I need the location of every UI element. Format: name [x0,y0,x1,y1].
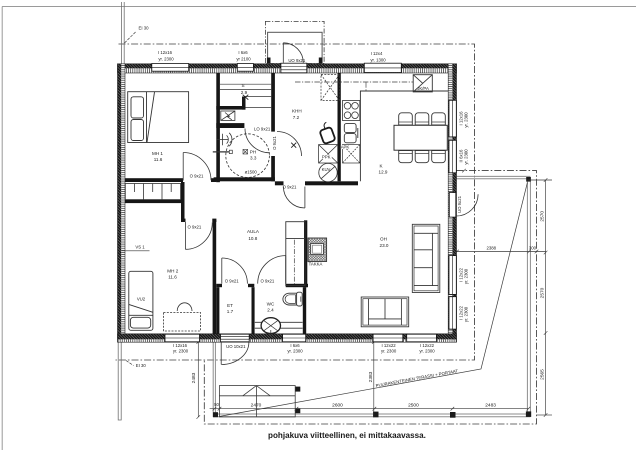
svg-text:OH: OH [380,236,387,241]
svg-text:yr. 1300: yr. 1300 [370,57,386,62]
svg-text:I 12x22: I 12x22 [382,343,397,348]
svg-text:S: S [241,83,244,88]
svg-text:I 12x16: I 12x16 [158,50,173,55]
svg-text:O 9x21: O 9x21 [187,224,201,229]
svg-text:2388: 2388 [487,246,497,251]
svg-text:2570: 2570 [539,287,545,298]
svg-text:KUV: KUV [322,167,331,172]
svg-text:7.2: 7.2 [293,115,300,120]
svg-text:2565: 2565 [539,369,545,380]
svg-text:pohjakuva viitteellinen, ei mi: pohjakuva viitteellinen, ei mittakaavass… [268,431,426,440]
svg-text:12.9: 12.9 [379,170,388,175]
svg-text:10.8: 10.8 [248,236,257,241]
svg-text:I 6x6: I 6x6 [238,50,248,55]
svg-text:JK/PA: JK/PA [417,86,429,91]
svg-text:2570: 2570 [539,211,545,222]
svg-text:UO 9x21: UO 9x21 [288,58,306,63]
svg-text:KHH: KHH [292,108,302,113]
svg-text:2.9: 2.9 [241,90,248,95]
svg-text:TAKKA: TAKKA [309,262,323,267]
svg-text:yr. 2300: yr. 2300 [287,348,303,353]
svg-text:APK: APK [341,145,350,150]
svg-text:O 9x21: O 9x21 [283,184,297,189]
svg-text:11.6: 11.6 [168,275,177,280]
svg-text:23.0: 23.0 [380,243,389,248]
svg-text:VS 1: VS 1 [135,245,145,250]
svg-text:LO 9x21: LO 9x21 [254,127,271,132]
svg-text:I 12x22: I 12x22 [420,343,435,348]
svg-text:PPK: PPK [322,155,331,160]
svg-text:MH 1: MH 1 [152,151,163,156]
svg-text:MH 2: MH 2 [167,269,178,274]
svg-text:O 9x21: O 9x21 [225,279,239,284]
svg-text:2470: 2470 [251,403,262,409]
svg-text:O 9x21: O 9x21 [260,279,274,284]
svg-text:2483: 2483 [485,403,496,409]
svg-text:I 12x16: I 12x16 [173,343,188,348]
svg-text:2500: 2500 [408,403,419,409]
svg-text:yr. 2300: yr. 2300 [464,112,469,128]
svg-text:UO 9x21: UO 9x21 [457,195,462,213]
svg-text:ET: ET [227,303,233,308]
svg-text:yr 2100: yr 2100 [236,56,251,61]
svg-text:yr. 2300: yr. 2300 [173,348,189,353]
svg-text:2600: 2600 [332,403,343,409]
svg-text:VU2: VU2 [137,297,146,302]
svg-text:3.3: 3.3 [250,156,257,161]
svg-text:ø1500: ø1500 [245,169,258,174]
svg-text:yr. 2300: yr. 2300 [381,348,397,353]
svg-text:I 6x6: I 6x6 [290,343,300,348]
svg-text:PH: PH [250,149,256,154]
svg-text:O 9x21: O 9x21 [190,174,204,179]
svg-text:yr. 2300: yr. 2300 [464,306,469,322]
svg-text:I 12x4: I 12x4 [371,51,383,56]
svg-text:1.7: 1.7 [227,309,234,314]
svg-text:2483: 2483 [191,372,197,383]
svg-text:11.6: 11.6 [154,157,163,162]
svg-text:2383: 2383 [368,371,374,382]
svg-text:EI 30: EI 30 [138,26,149,31]
svg-text:yr. 2300: yr. 2300 [464,268,469,284]
svg-text:O 9x21: O 9x21 [272,135,277,149]
svg-text:yr. 2300: yr. 2300 [419,348,435,353]
svg-text:WC: WC [267,301,275,306]
svg-text:2.4: 2.4 [267,308,274,313]
svg-text:yr. 2300: yr. 2300 [464,149,469,165]
svg-text:yr. 2300: yr. 2300 [158,56,174,61]
svg-text:UO 10x21: UO 10x21 [226,344,246,349]
svg-text:300: 300 [529,246,537,251]
svg-text:EI 30: EI 30 [136,363,147,368]
svg-text:AULA: AULA [247,229,260,234]
svg-text:50: 50 [214,402,219,407]
